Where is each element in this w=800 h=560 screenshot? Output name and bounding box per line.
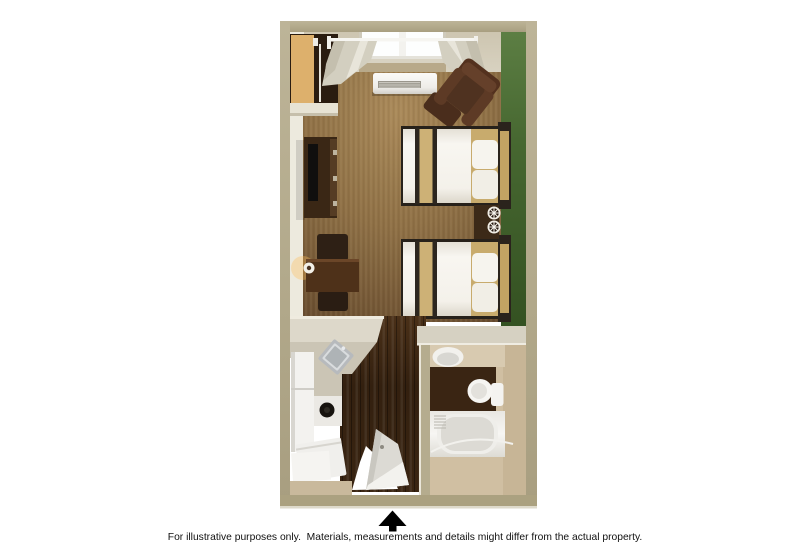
- svg-text:For illustrative purposes only: For illustrative purposes only. Material…: [168, 532, 642, 543]
